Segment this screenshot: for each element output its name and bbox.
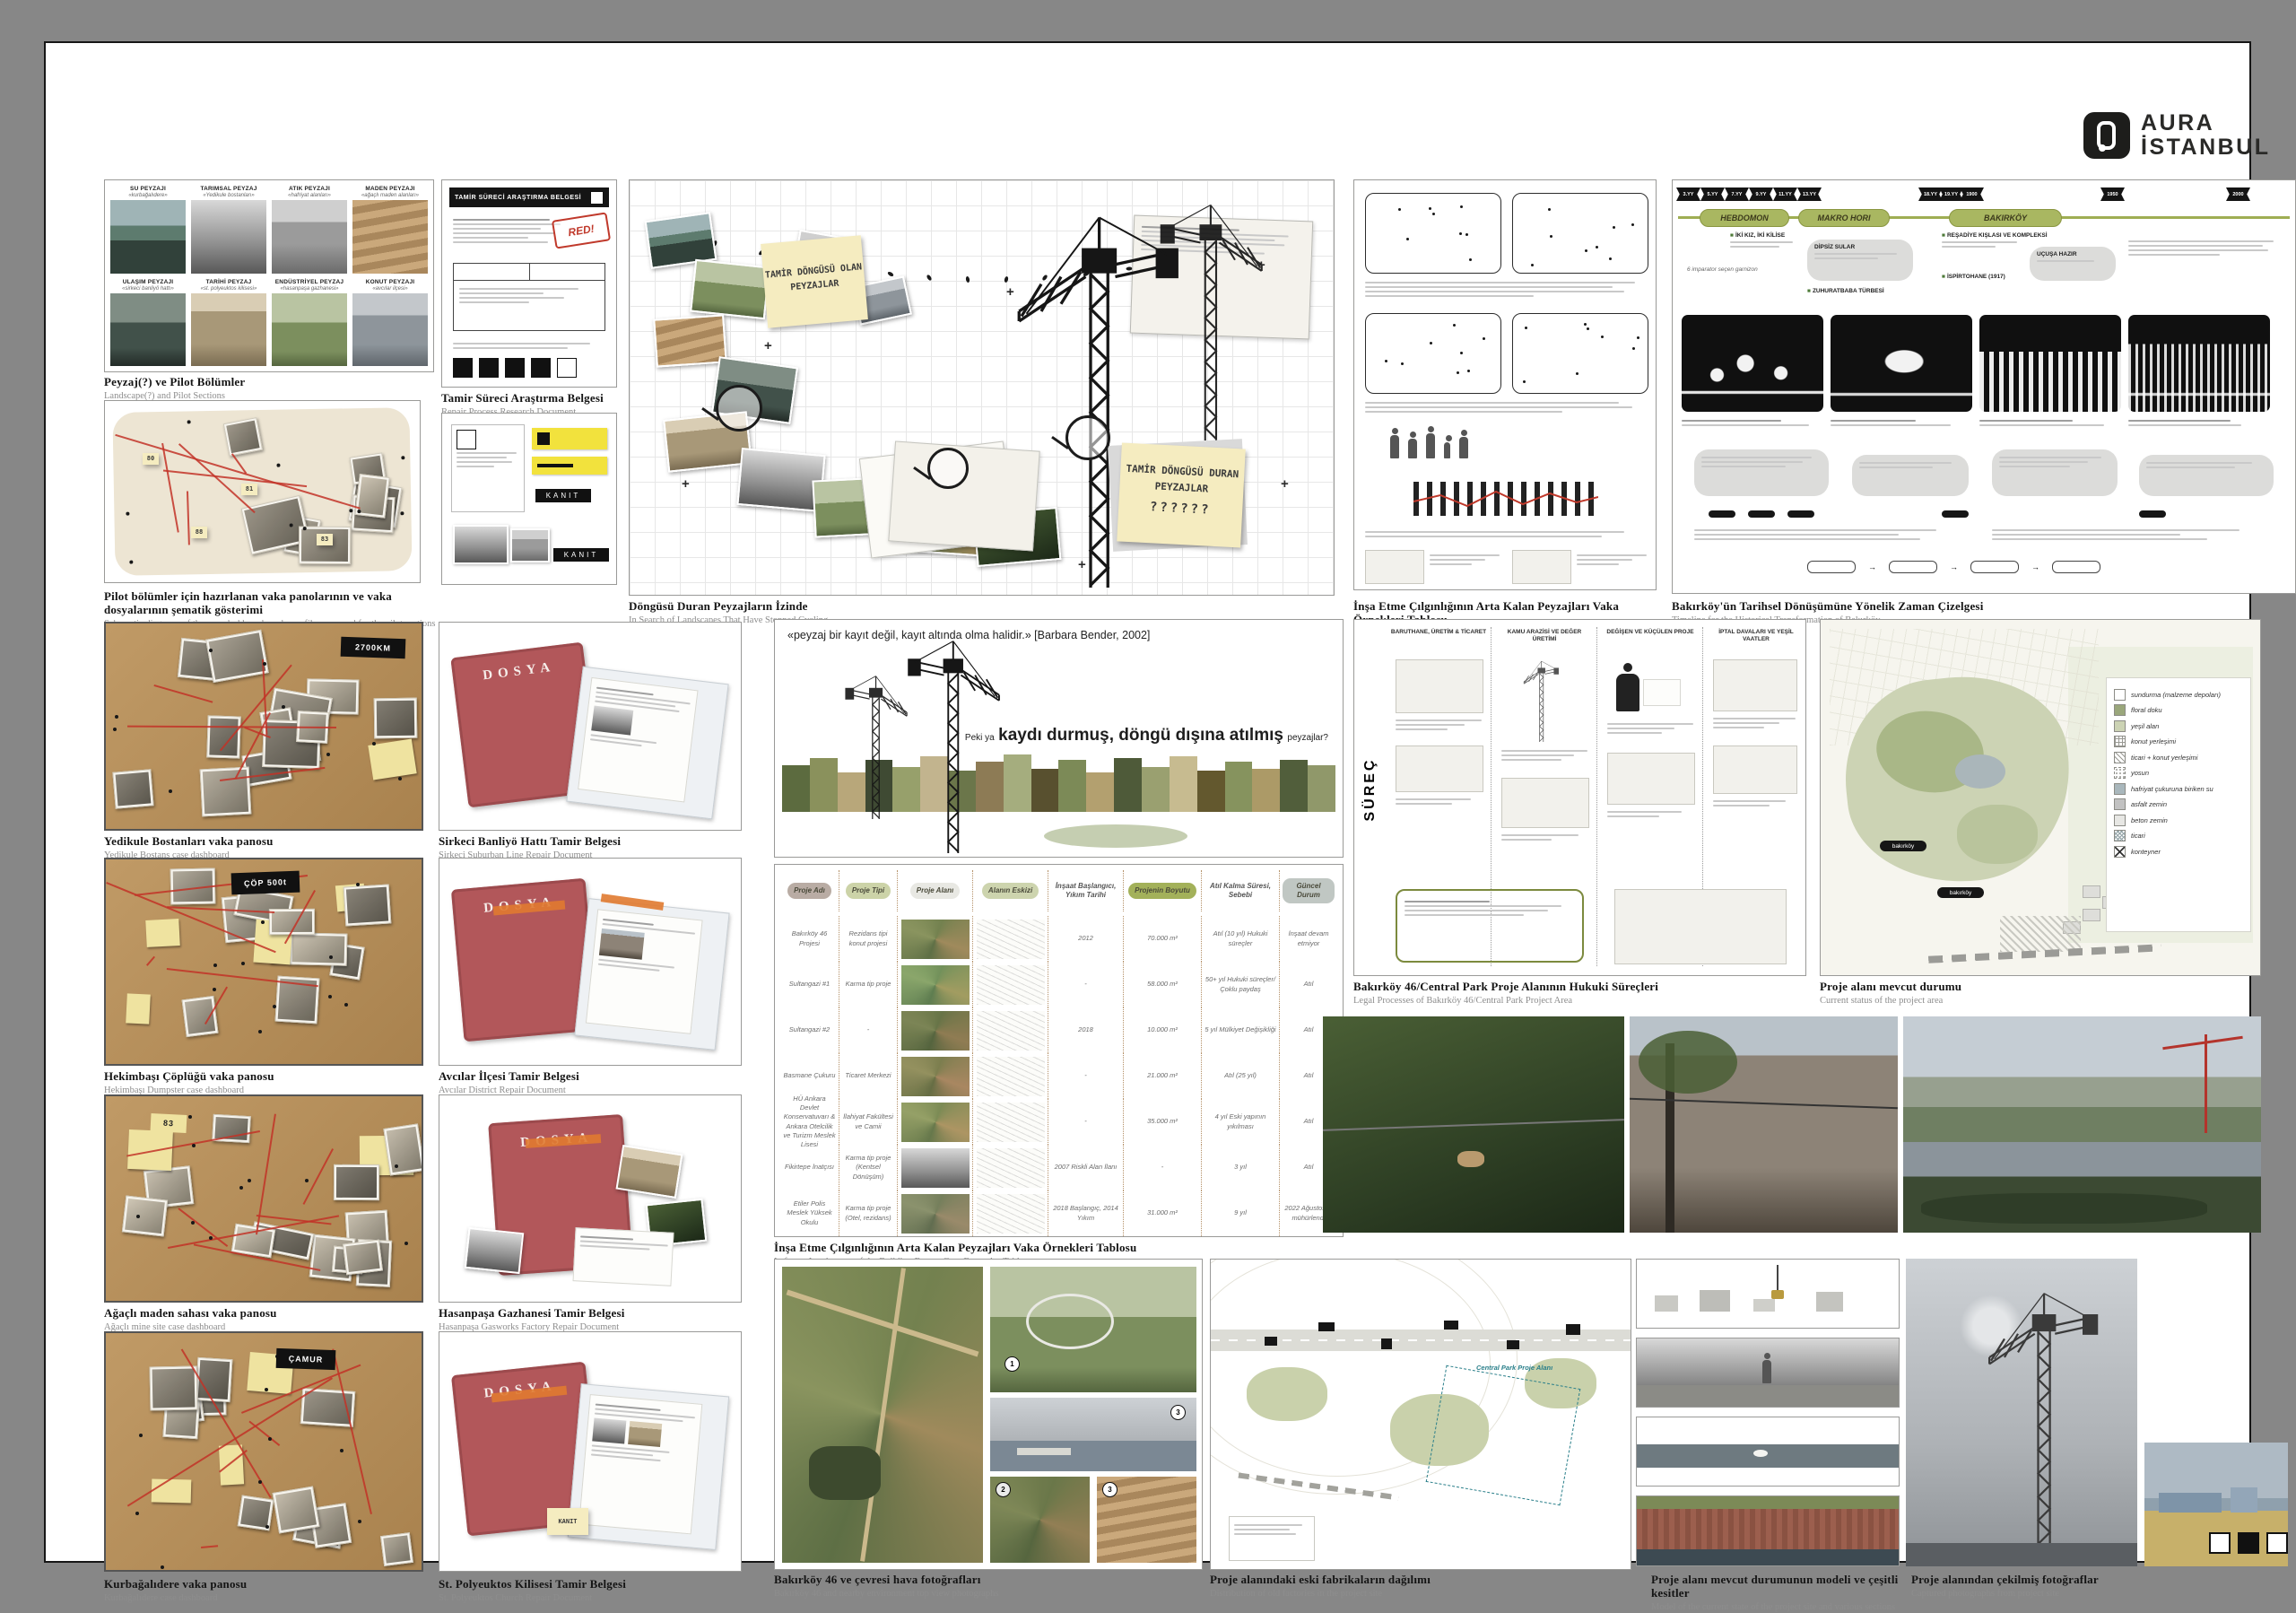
repair-doc-header: TAMİR SÜRECİ ARAŞTIRMA BELGESİ [449,187,609,207]
schematic-note: 80 [143,453,159,465]
grass-blob [1044,824,1187,848]
pilot-grid-caption: Peyzaj(?) ve Pilot BölümlerLandscape(?) … [104,376,427,402]
crane-photo [1906,1259,2137,1566]
table-photo [901,920,970,959]
human-figures [1390,433,1468,458]
timeline-entry: ■İSPİRTOHANE (1917) [1942,274,2005,280]
pilot-cell: ATIK PEYZAJI«hafriyat alanları» [272,186,347,274]
folder-panel-hasanpasa: DOSYA [439,1094,742,1303]
repair-doc-swatches [453,358,577,378]
pilot-photo [110,200,186,274]
aerial-photos-panel: 1 3 2 3 [774,1259,1203,1570]
method-text [1365,279,1647,300]
pilot-photo [352,200,428,274]
pilot-cell: SU PEYZAJI«kurbağalıdere» [110,186,186,274]
site-photo-factory [1630,1016,1898,1233]
case-board-yedikule: 2700KM [104,622,423,831]
repair-doc-lines [453,216,561,246]
registration-square [2238,1532,2259,1554]
table-header: Proje Alanı [910,883,961,899]
kanit-label: KANIT [553,548,609,562]
board2-caption: Hekimbaşı Çöplüğü vaka panosuHekimbaşı D… [104,1070,427,1096]
logo-line-bottom: İSTANBUL [2141,135,2271,160]
board4-caption: Kurbağalıdere vaka panosuKurbağalıdere c… [104,1578,427,1604]
evidence-photo [453,525,509,564]
timeline-tick: 3.YY [1676,187,1700,201]
collage-photo [690,259,770,319]
timeline-tick: 1900 [1960,187,1984,201]
case-board-agacli: 83 [104,1094,423,1303]
pilot-cell: ULAŞIM PEYZAJI«sirkeci banliyö hattı» [110,279,186,367]
question-line: Peki ya kaydı durmuş, döngü dışına atılm… [965,726,1328,745]
crane-silhouette [1143,189,1277,440]
table-header: Atıl Kalma Süresi, Sebebi [1205,882,1276,900]
factories-caption: Proje alanındaki eski fabrikaların dağıl… [1210,1574,1587,1600]
era-pill: BAKIRKÖY [1949,209,2062,227]
folder2-caption: Avcılar İlçesi Tamir BelgesiAvcılar Dist… [439,1070,744,1096]
satellite-image [782,1267,983,1563]
case-board-kurbagalidere: ÇAMUR [104,1331,423,1572]
table-header: Güncel Durum [1283,878,1335,902]
case-examples-table: Proje Adı Proje Tipi Proje Alanı Alanın … [774,864,1344,1237]
kanit-label: KANIT [535,489,591,502]
timeline-art-skyline [2128,315,2270,412]
board-tag: 2700KM [341,637,406,658]
pond [1955,754,2005,789]
pilot-cell: KONUT PEYZAJI«avcılar ilçesi» [352,279,428,367]
quote-panel: «peyzaj bir kayıt değil, kayıt altında o… [774,619,1344,858]
timeline-tick: 11.YY [1773,187,1797,201]
pilot-cell: TARIMSAL PEYZAJ«Yedikule bostanları» [191,186,266,274]
timeline-entry: ■İKİ KIZ, İKİ KİLİSE [1730,232,1793,250]
bakirkoy-timeline: 3.YY 5.YY 7.YY 9.YY 11.YY 13.YY 18.YY 19… [1672,179,2296,594]
aerial-crop: 3 [1097,1477,1196,1563]
timeline-tick: 7.YY [1725,187,1749,201]
bakirkoy-label: bakırköy [1937,887,1984,898]
timeline-tick: 18.YY [1918,187,1943,201]
method-text [1365,528,1647,540]
schematic-note: 81 [241,484,257,495]
folder-panel-sirkeci: DOSYA [439,622,742,831]
case-board-hekimbasi: ÇÖP 500t [104,858,423,1066]
schematic-panel: 80 81 88 83 [104,400,421,583]
board3-caption: Ağaçlı maden sahası vaka panosuAğaçlı mi… [104,1307,427,1333]
crack-line [1413,482,1598,516]
era-pill: HEBDOMON [1700,209,1789,227]
flow-pills: → → → [1807,561,2100,573]
site-photo-vegetation [1323,1016,1624,1233]
sticky-note-2: TAMİR DÖNGÜSÜ DURAN PEYZAJLAR?????? [1117,442,1246,547]
pilot-photo [272,293,347,367]
magnifier-icon [716,385,762,432]
timeline-art-horse [1831,315,1972,412]
figure-head [1623,663,1632,672]
folder4-caption: St. Polyeuktos Kilisesi Tamir BelgesiSt.… [439,1578,744,1604]
aura-logo-icon [2083,112,2130,159]
board-tag: ÇAMUR [276,1348,336,1370]
repair-doc-lines2 [453,340,605,352]
pilot-photo [272,200,347,274]
folder-panel-avcilar: DOSYA [439,858,742,1066]
timeline-art-city [1979,315,2121,412]
map-caption: Proje alanı mevcut durumuCurrent status … [1820,981,2089,1007]
timeline-entry: ■REŞADİYE KIŞLASI VE KOMPLEKSİ [1942,232,2048,250]
board-tag: ÇÖP 500t [231,871,300,895]
green-outline-box [1396,889,1584,963]
repair-document-panel: TAMİR SÜRECİ ARAŞTIRMA BELGESİ RED! [441,179,617,388]
sitephotos-caption: Proje alanından çekilmiş fotoğraflarCapt… [1911,1574,2144,1600]
process-caption: Bakırköy 46/Central Park Proje Alanının … [1353,981,1676,1007]
folder-panel-polyeuktos: DOSYA KANIT [439,1331,742,1572]
table-header: Projenin Boyutu [1128,883,1196,899]
timeline-tick: 19.YY [1939,187,1963,201]
registration-square [2209,1532,2231,1554]
table-sketch [977,920,1045,959]
poster-sheet: AURA İSTANBUL SU PEYZAJI«kurbağalıdere» … [44,41,2251,1563]
timeline-tick: 2000 [2226,187,2250,201]
legal-process-panel: SÜREÇ BARUTHANE, ÜRETİM & TİCARET KAMU A… [1353,619,1806,976]
cycling-landscapes-collage: ++ ++ ++ TAMİR DÖNGÜSÜ OLAN PEYZAJLAR TA… [629,179,1335,596]
method-text [1365,399,1647,415]
model-caption: Proje alanı mevcut durumunun modeli ve ç… [1651,1574,1920,1613]
mini-legend [1229,1516,1315,1561]
bakirkoy-label: bakırköy [1880,841,1926,851]
pilot-landscapes-grid: SU PEYZAJI«kurbağalıdere» TARIMSAL PEYZA… [104,179,434,372]
project-boundary [1426,1365,1581,1505]
centralpark-label: Central Park Proje Alanı [1476,1364,1552,1372]
process-col-header: BARUTHANE, ÜRETİM & TİCARET [1390,629,1487,636]
pilot-cell: TARİHİ PEYZAJ«st. polyeuktos kilisesi» [191,279,266,367]
timeline-entry: ■ZUHURATBABA TÜRBESİ [1807,288,1884,294]
map-sketch [1365,313,1501,394]
pilot-cell: MADEN PEYZAJI«ağaçlı maden alanları» [352,186,428,274]
aerial-caption: Bakırköy 46 ve çevresi hava fotoğrafları… [774,1574,1151,1600]
timeline-art-forest [1682,315,1823,412]
pilot-photo [352,293,428,367]
timeline-tick: 5.YY [1700,187,1725,201]
model-strips [1636,1259,1900,1566]
evidence-panel: KANIT KANIT [441,413,617,585]
table-header: İnşaat Başlangıcı, Yıkım Tarihi [1051,882,1120,900]
pilot-photo [191,293,266,367]
schematic-blob [112,407,412,576]
pilot-cell: ENDÜSTRİYEL PEYZAJ«hasanpaşa gazhanesi» [272,279,347,367]
qr-icon [590,191,604,205]
repair-doc-table [453,263,605,331]
schematic-note: 88 [191,527,207,538]
suit-figure [1616,674,1639,711]
yellow-ticket [532,428,607,449]
aerial-crop: 2 [990,1477,1090,1563]
methodology-panel [1353,179,1657,590]
aerial-stadium: 1 [990,1267,1196,1392]
timeline-blob: UÇUŞA HAZIR [2030,247,2116,281]
pilot-photo [191,200,266,274]
mini-sketch [1365,550,1424,584]
timeline-tick: 13.YY [1797,187,1822,201]
site-map-panel: bakırköy bakırköy sundurma (malzeme depo… [1820,619,2261,976]
sticky-note-1: TAMİR DÖNGÜSÜ OLAN PEYZAJLAR [761,235,868,327]
folder3-caption: Hasanpaşa Gazhanesi Tamir BelgesiHasanpa… [439,1307,744,1333]
registration-square [2266,1532,2288,1554]
table-header: Proje Adı [787,883,831,899]
timeline-text [2128,238,2281,258]
site-photo-panorama [1903,1016,2261,1233]
board-tag: 83 [151,1113,187,1133]
collage-photo [653,314,727,367]
magnifier-icon [927,448,969,489]
crane-silhouette [831,667,920,819]
mini-sketch [1512,550,1571,584]
schematic-note: 83 [317,534,333,545]
evidence-photo [510,528,550,562]
pilot-photo [110,293,186,367]
aura-istanbul-logo: AURA İSTANBUL [2083,111,2271,160]
timeline-blob: DİPSİZ SULAR [1807,240,1913,281]
logo-line-top: AURA [2141,111,2271,135]
timeline-entry: 6 imparator seçen garnizon [1687,266,1758,273]
timeline-tick: 1950 [2100,187,2125,201]
aerial-harbor: 3 [990,1398,1196,1471]
table-header: Alanın Eskizi [982,883,1039,899]
yellow-ticket [532,457,607,475]
map-sketch [1512,313,1648,394]
map-legend: sundurma (malzeme depoları) floral doku … [2106,677,2251,932]
evidence-card [451,424,525,512]
map-sketch [1365,193,1501,274]
table-cell: Bakırköy 46 Projesi [780,916,839,962]
table-header: Proje Tipi [846,883,891,899]
era-pill: MAKRO HORI [1798,209,1890,227]
magnifier-icon [1065,415,1110,460]
timeline-tick: 9.YY [1749,187,1773,201]
map-sketch [1512,193,1648,274]
factories-map-panel: Central Park Proje Alanı [1210,1259,1631,1570]
process-title: SÜREÇ [1362,718,1378,861]
